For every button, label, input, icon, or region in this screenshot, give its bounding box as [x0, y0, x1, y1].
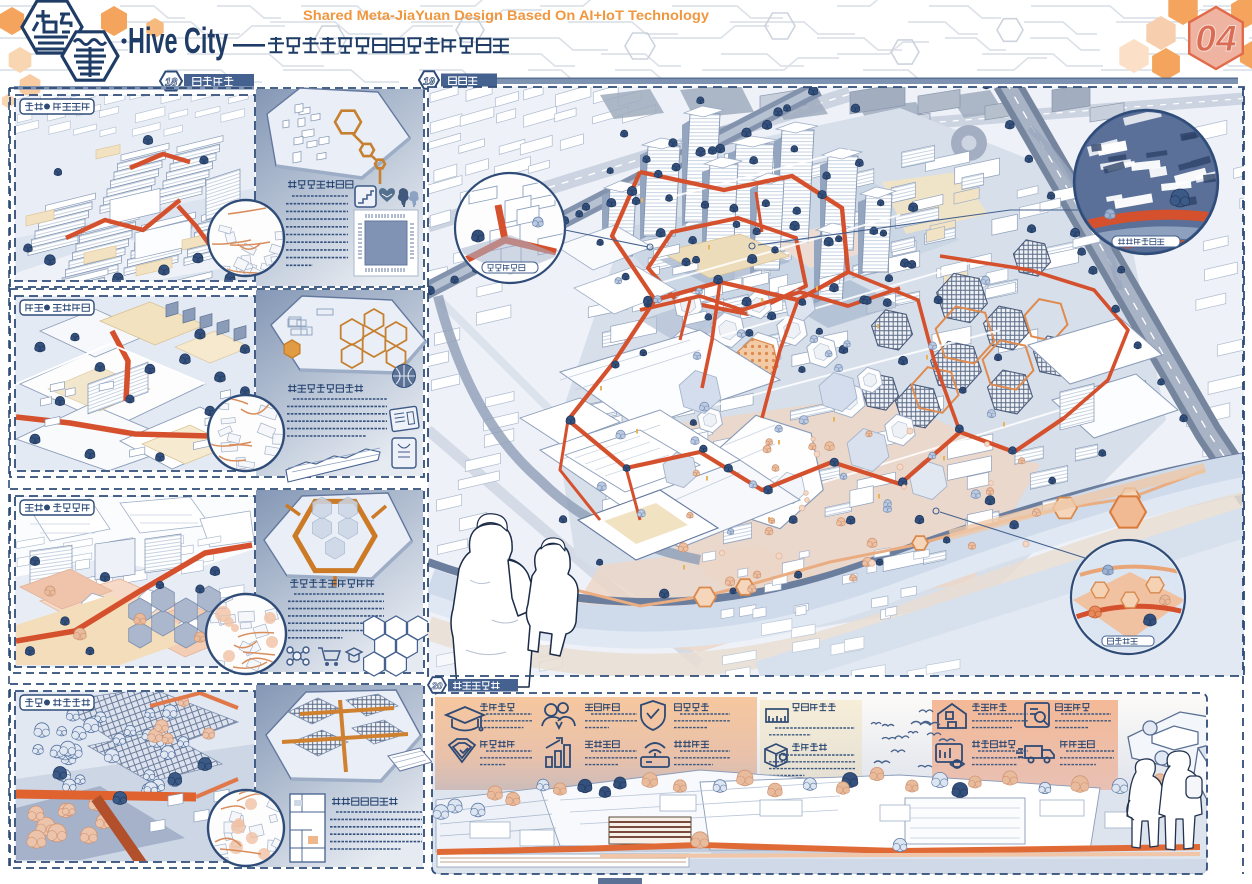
svg-text:20: 20	[431, 681, 443, 692]
svg-text:19: 19	[423, 76, 435, 88]
svg-text:04: 04	[1195, 18, 1236, 59]
svg-text:Shared Meta-JiaYuan Design Bas: Shared Meta-JiaYuan Design Based On AI+I…	[303, 7, 709, 23]
svg-text:Hive City: Hive City	[128, 22, 228, 61]
